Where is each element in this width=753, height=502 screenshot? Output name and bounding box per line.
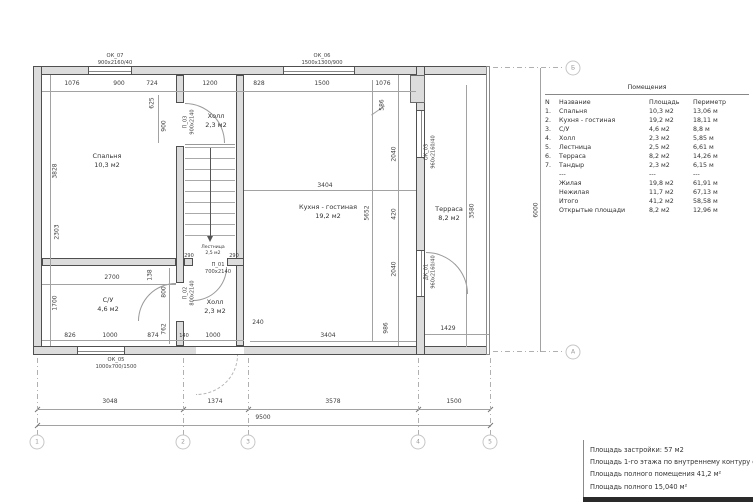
opening-label-ok07: ОК_07 900х2160/40: [98, 53, 133, 67]
table-row: 6. Терраса 8,2 м2 14,26 м: [545, 152, 749, 161]
room-label-bathroom: С/У 4,6 м2: [97, 296, 118, 314]
dim-label: 1429: [440, 325, 455, 332]
dim-label: 3404: [317, 182, 332, 189]
table-row: 1. Спальня 10,3 м2 13,06 м: [545, 107, 749, 116]
dim-label: 9500: [255, 414, 270, 421]
room-label-bedroom: Спальня 10,3 м2: [93, 152, 122, 170]
room-label-kitchen: Кухня - гостиная 19,2 м2: [299, 203, 357, 221]
stairs-direction-line: [210, 148, 211, 236]
wall-interior: [184, 258, 193, 266]
stairs-down-arrow-icon: [207, 236, 213, 242]
dim-line: [158, 95, 159, 143]
opening-label-ok05: ОК_05 1000х700/1500: [95, 357, 136, 371]
room-label-terrace: Терраса 8,2 м2: [435, 205, 463, 223]
dim-label: 290: [184, 253, 194, 259]
dim-label: 900: [161, 120, 168, 131]
opening-label-p01: П_01 700х2140: [205, 262, 231, 276]
stairs-boundary: [185, 144, 235, 145]
table-summary-row: Жилая 19,8 м2 61,91 м: [545, 179, 749, 188]
dim-label: 762: [161, 323, 168, 334]
note-line: Площадь полного помещения 41,2 м²: [590, 468, 753, 480]
dim-label: 240: [252, 319, 263, 326]
dim-label: 874: [147, 332, 158, 339]
note-line: Площадь 1-го этажа по внутреннему контур…: [590, 456, 753, 468]
dim-label: 1076: [375, 80, 390, 87]
room-label-hall-bottom: Холл 2,3 м2: [204, 298, 225, 316]
dim-line: [42, 284, 176, 285]
grid-bubble-B: Б: [566, 61, 581, 76]
dim-label: 420: [391, 208, 398, 219]
dim-label: 138: [147, 269, 154, 280]
room-label-hall-top: Холл 2,3 м2: [205, 112, 226, 130]
opening-label-ok03: ОК_03 960х2160/40: [424, 135, 437, 168]
opening-label-p03: П_03 900х2140: [183, 109, 196, 134]
grid-bubble-1: 1: [30, 435, 45, 450]
dim-label: 986: [383, 322, 390, 333]
note-line: Площадь застройки: 57 м2: [590, 444, 753, 456]
dim-line: [37, 409, 490, 410]
opening-label-ok06: ОК_06 1500х1300/900: [301, 53, 342, 67]
terrace-edge: [486, 66, 490, 355]
dim-label: 1500: [446, 398, 461, 405]
dim-label: 1076: [64, 80, 79, 87]
entry-door-opening: [196, 347, 244, 354]
grid-bubble-5: 5: [483, 435, 498, 450]
grid-axis-line: [418, 358, 419, 435]
dim-label: 2700: [104, 274, 119, 281]
dim-label: 625: [149, 97, 156, 108]
grid-axis-line: [493, 67, 563, 68]
dim-label: 1700: [52, 295, 59, 310]
grid-bubble-3: 3: [241, 435, 256, 450]
dim-label: 290: [229, 253, 239, 259]
dim-label: 1500: [314, 80, 329, 87]
dim-line: [540, 68, 541, 352]
dim-label: 724: [146, 80, 157, 87]
opening-label-dk01: ДК_01 960х2160/40: [424, 255, 437, 288]
dim-line: [398, 75, 399, 346]
wall-left: [33, 66, 42, 355]
dim-label: 2040: [391, 146, 398, 161]
wall-interior: [176, 146, 184, 283]
title-block-bar: [583, 497, 753, 502]
wall-stub: [410, 75, 425, 103]
note-line: Площадь полного 15,040 м²: [590, 481, 753, 493]
grid-bubble-A: А: [566, 345, 581, 360]
entry-door-swing-arc: [196, 355, 238, 395]
dim-line: [466, 85, 467, 347]
grid-bubble-2: 2: [176, 435, 191, 450]
dim-label: 2303: [54, 224, 61, 239]
window-ok05: [77, 347, 125, 354]
wall-interior: [176, 75, 184, 103]
table-summary-row: Нежилая 11,7 м2 67,13 м: [545, 188, 749, 197]
rooms-table: Помещения N Название Площадь Периметр 1.…: [545, 84, 749, 215]
table-row: 3. С/У 4,6 м2 8,8 м: [545, 125, 749, 134]
dim-line: [250, 341, 416, 342]
dim-label: 6000: [533, 202, 540, 217]
dim-line: [372, 80, 373, 342]
dim-label: 3404: [320, 332, 335, 339]
grid-axis-line: [183, 358, 184, 435]
dim-label: 1000: [102, 332, 117, 339]
dim-label: 3578: [325, 398, 340, 405]
table-header-row: N Название Площадь Периметр: [545, 98, 749, 107]
grid-axis-line: [490, 358, 491, 435]
dim-label: 1374: [207, 398, 222, 405]
table-row: 7. Тандыр 2,3 м2 6,15 м: [545, 161, 749, 170]
grid-bubble-4: 4: [411, 435, 426, 450]
dim-label: 586: [379, 99, 386, 110]
dim-label: 3580: [469, 203, 476, 218]
table-row: 2. Кухня - гостиная 19,2 м2 18,11 м: [545, 116, 749, 125]
notes-divider: [583, 440, 584, 502]
dim-line: [42, 91, 416, 92]
dim-label: 826: [64, 332, 75, 339]
dim-label: 3828: [52, 163, 59, 178]
room-label-stairs: Лестница 2,5 м2: [201, 245, 224, 257]
grid-axis-line: [37, 358, 38, 435]
table-separator-row: --- --- ---: [545, 170, 749, 179]
dim-label: 828: [253, 80, 264, 87]
dim-line: [42, 340, 244, 341]
dim-label: 800: [161, 286, 168, 297]
col-header-name: Название: [559, 98, 649, 107]
dim-label: 3048: [102, 398, 117, 405]
dim-label: 1000: [205, 332, 220, 339]
floor-plan-drawing: Спальня 10,3 м2 Холл 2,3 м2 Кухня - гост…: [0, 0, 753, 502]
wall-interior: [42, 258, 176, 266]
dim-label: 5652: [364, 205, 371, 220]
dim-label: 140: [179, 333, 189, 339]
grid-axis-line: [248, 358, 249, 435]
dim-label: 2040: [391, 261, 398, 276]
table-row: 5. Лестница 2,5 м2 6,61 м: [545, 143, 749, 152]
dim-line: [244, 190, 416, 191]
table-summary-row: Итого 41,2 м2 58,58 м: [545, 197, 749, 206]
table-rule: [545, 94, 749, 95]
wall-interior: [236, 75, 244, 346]
dim-label: 900: [113, 80, 124, 87]
table-summary-row: Открытые площади 8,2 м2 12,96 м: [545, 206, 749, 215]
table-row: 4. Холл 2,3 м2 5,85 м: [545, 134, 749, 143]
col-header-area: Площадь: [649, 98, 693, 107]
dim-line: [425, 334, 489, 335]
door-swing-arc: [138, 283, 176, 321]
window-ok06: [283, 67, 355, 74]
opening-label-p02: П_02 800х2140: [183, 280, 196, 305]
col-header-n: N: [545, 98, 559, 107]
grid-axis-line: [493, 351, 563, 352]
dim-label: 1200: [202, 80, 217, 87]
dim-line: [169, 268, 170, 344]
col-header-perimeter: Периметр: [693, 98, 749, 107]
window-ok07: [88, 67, 132, 74]
rooms-table-title: Помещения: [545, 84, 749, 94]
dim-line: [37, 425, 490, 426]
area-notes: Площадь застройки: 57 м2 Площадь 1-го эт…: [590, 444, 753, 493]
